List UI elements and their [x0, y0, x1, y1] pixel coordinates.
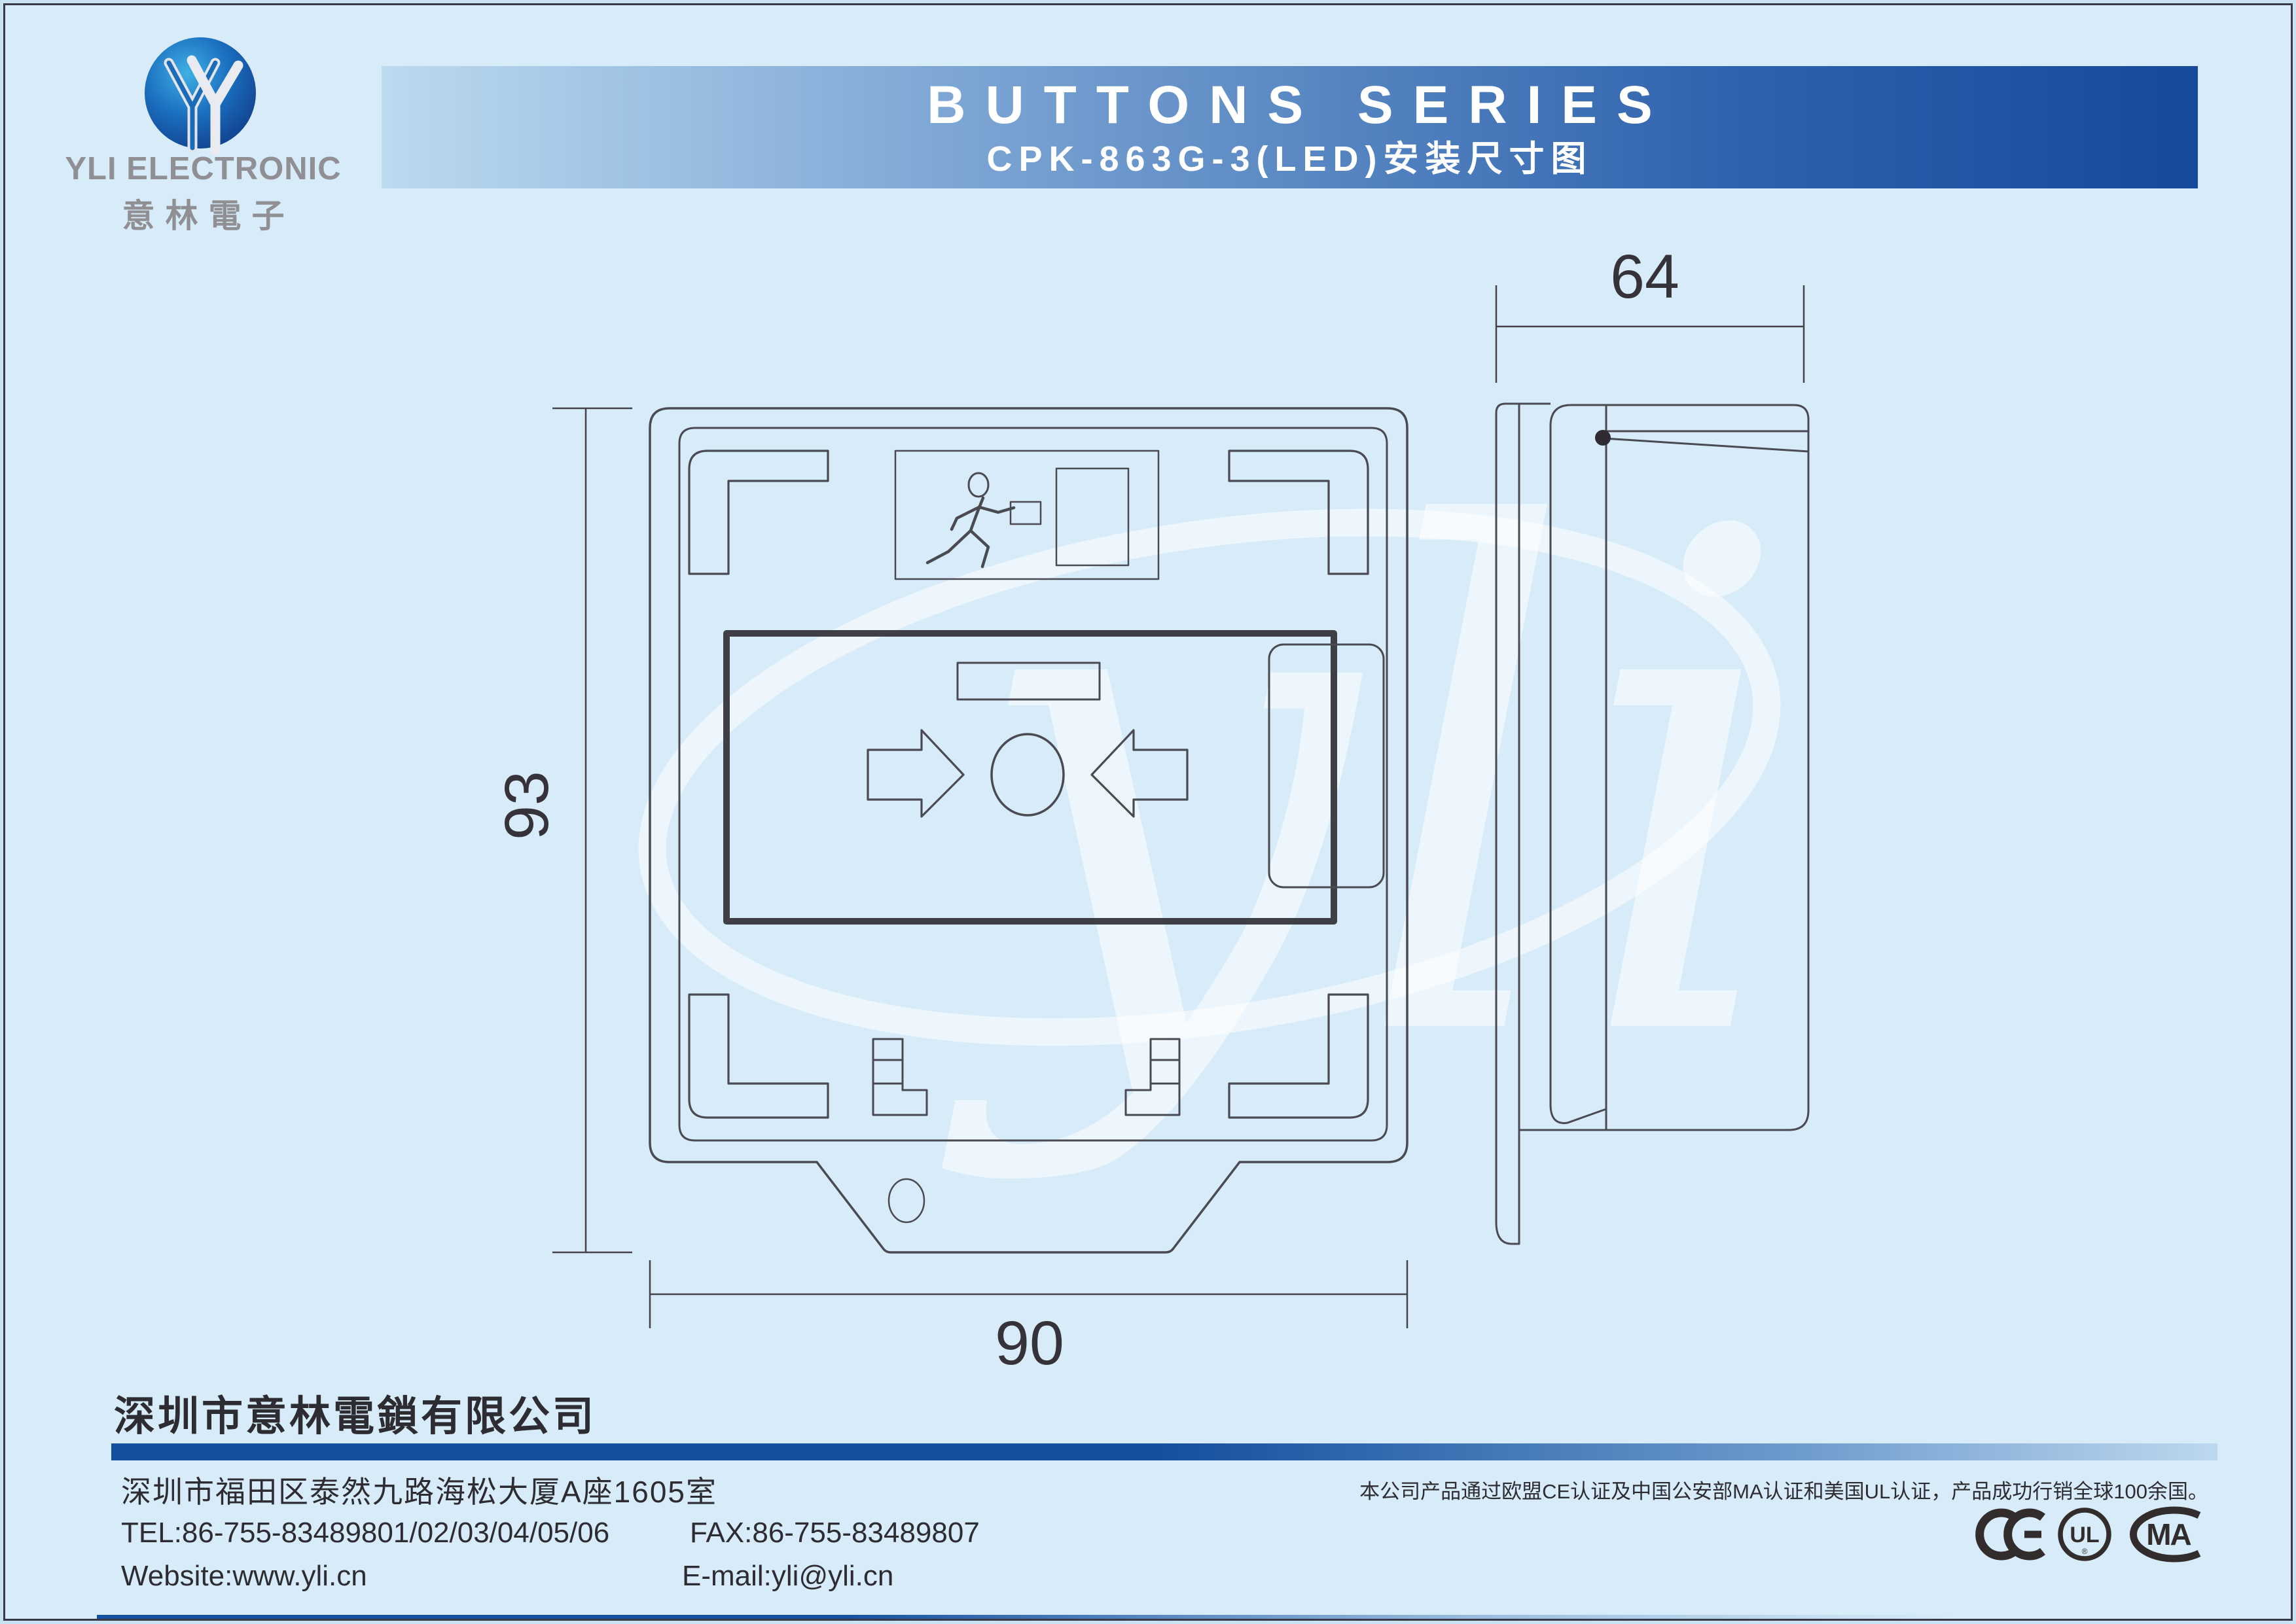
footer-certification-note: 本公司产品通过欧盟CE认证及中国公安部MA认证和美国UL认证，产品成功行销全球1…: [1359, 1475, 2208, 1504]
company-name-en: YLI ELECTRONIC: [51, 150, 355, 187]
certification-marks: UL ® MA: [1980, 1510, 2199, 1559]
side-body: [1519, 405, 1808, 1130]
company-logo-icon: [145, 37, 256, 150]
page-border: yli: [3, 3, 2293, 1621]
corner-bracket-top-left: [689, 451, 828, 574]
watermark: yli: [616, 388, 1804, 1188]
exit-sign-frame: [895, 451, 1158, 579]
footer-divider-bar: [111, 1443, 2217, 1460]
footer-address: 深圳市福田区泰然九路海松大厦A座1605室: [121, 1468, 717, 1511]
corner-bracket-bottom-left: [689, 995, 828, 1118]
logo-globe-icon: [145, 37, 256, 149]
mounting-clip-right: [1126, 1039, 1179, 1115]
footer-bottom-stripe: [97, 1615, 2211, 1621]
ul-registered-icon: ®: [2082, 1547, 2088, 1556]
footer-tel: TEL:86-755-83489801/02/03/04/05/06: [121, 1517, 609, 1549]
arrow-left-icon: [1092, 730, 1187, 817]
logo-y-icon: [169, 60, 238, 150]
dim-label-width: 90: [958, 1313, 1102, 1375]
front-inner-outline: [679, 428, 1387, 1140]
mounting-clip-left: [873, 1039, 927, 1115]
technical-drawing: yli: [5, 5, 2293, 1621]
screw-hole: [889, 1179, 924, 1222]
led-window: [958, 663, 1100, 699]
ul-mark-text: UL: [2070, 1523, 2099, 1547]
dimension-height-93: [552, 408, 632, 1252]
watermark-ellipse: [616, 450, 1804, 1104]
ul-mark-icon: UL ®: [2060, 1510, 2109, 1559]
dimension-lines: [552, 285, 1804, 1328]
company-name-cn: 意林電子: [51, 190, 355, 237]
ma-mark-text: MA: [2146, 1517, 2191, 1551]
banner-subtitle: CPK-863G-3(LED)安装尺寸图: [986, 141, 1592, 177]
corner-bracket-top-right: [1229, 451, 1368, 574]
side-button-housing: [1551, 405, 1606, 1123]
corner-bracket-bottom-right: [1229, 995, 1368, 1118]
module-frame: [726, 633, 1334, 921]
exit-door-icon: [1056, 468, 1128, 565]
arrow-right-icon: [868, 730, 963, 817]
footer-email: E-mail:yli@yli.cn: [682, 1560, 893, 1593]
footer-company-name: 深圳市意林電鎖有限公司: [114, 1383, 596, 1443]
dim-label-height: 93: [491, 769, 563, 841]
footer-website: Website:www.yli.cn: [121, 1560, 367, 1593]
watermark-text: yli: [935, 388, 1795, 1188]
footer-fax: FAX:86-755-83489807: [690, 1517, 980, 1549]
title-banner: BUTTONS SERIES CPK-863G-3(LED)安装尺寸图: [382, 66, 2198, 188]
running-man-icon: [927, 473, 1041, 567]
ma-mark-icon: MA: [2133, 1510, 2199, 1559]
front-view: [650, 408, 1407, 1252]
banner-title: BUTTONS SERIES: [907, 79, 1672, 132]
dim-label-depth: 64: [1573, 246, 1717, 308]
side-hinge-line: [1604, 438, 1808, 451]
push-button: [992, 734, 1064, 815]
front-outer-outline: [650, 408, 1407, 1252]
side-view: [1496, 404, 1808, 1244]
exit-sign: [895, 451, 1158, 579]
side-mounting-plate: [1496, 404, 1519, 1244]
side-pivot-dot: [1595, 430, 1611, 446]
key-release-slot: [1269, 644, 1384, 887]
ce-mark-icon: [1980, 1513, 2043, 1556]
